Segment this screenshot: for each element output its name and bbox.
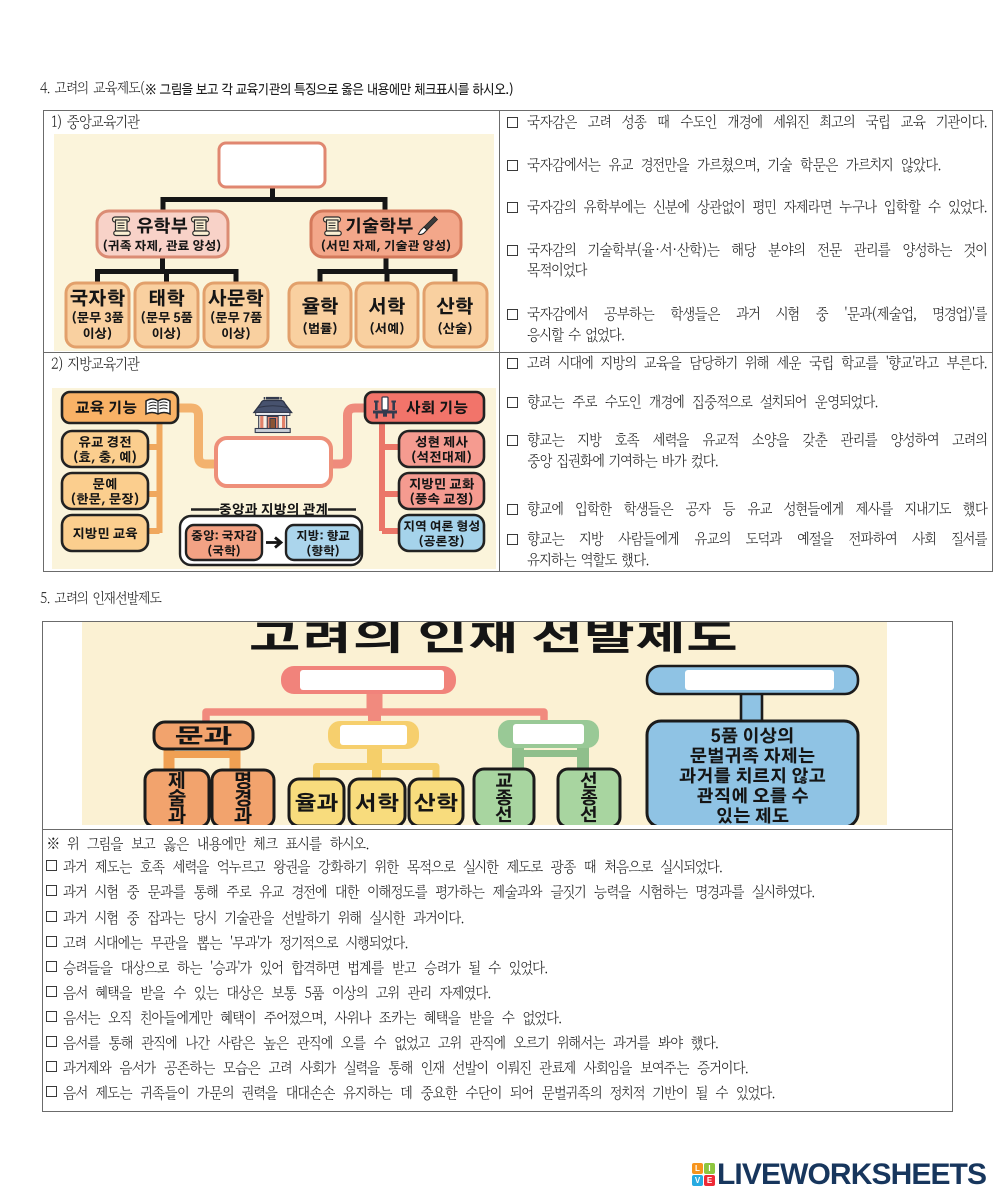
svg-text:이상): 이상) bbox=[82, 326, 112, 341]
svg-text:선: 선 bbox=[580, 772, 598, 791]
svg-text:유교 경전: 유교 경전 bbox=[79, 436, 132, 450]
svg-text:관직에 오를 수: 관직에 오를 수 bbox=[696, 787, 808, 806]
svg-text:기술학부: 기술학부 bbox=[345, 217, 414, 236]
svg-text:중앙: 국자감: 중앙: 국자감 bbox=[191, 529, 257, 543]
svg-text:선: 선 bbox=[580, 806, 598, 825]
svg-text:지역 여론 형성: 지역 여론 형성 bbox=[403, 520, 480, 534]
svg-text:종: 종 bbox=[495, 789, 513, 808]
svg-text:경: 경 bbox=[234, 789, 253, 809]
svg-text:산학: 산학 bbox=[436, 297, 473, 317]
svg-text:선: 선 bbox=[495, 806, 513, 825]
svg-text:있는 제도: 있는 제도 bbox=[716, 807, 789, 825]
svg-text:과: 과 bbox=[234, 807, 253, 826]
svg-text:(문무 5품: (문무 5품 bbox=[140, 310, 193, 325]
svg-text:종: 종 bbox=[580, 789, 598, 808]
svg-text:교육 기능: 교육 기능 bbox=[75, 400, 137, 416]
svg-text:국자학: 국자학 bbox=[70, 289, 126, 309]
svg-text:교: 교 bbox=[495, 773, 513, 791]
svg-text:성현 제사: 성현 제사 bbox=[414, 436, 468, 450]
svg-text:(문무 3품: (문무 3품 bbox=[71, 310, 124, 325]
svg-text:사회 기능: 사회 기능 bbox=[406, 400, 468, 416]
svg-text:산학: 산학 bbox=[414, 792, 458, 815]
svg-text:(서민 자제, 기술관 양성): (서민 자제, 기술관 양성) bbox=[320, 239, 451, 253]
svg-text:(공론장): (공론장) bbox=[418, 535, 465, 549]
svg-text:지방민 교육: 지방민 교육 bbox=[72, 527, 137, 541]
svg-text:과: 과 bbox=[168, 807, 187, 826]
svg-text:(풍속 교정): (풍속 교정) bbox=[409, 492, 474, 507]
svg-text:(법률): (법률) bbox=[302, 321, 338, 336]
svg-text:(문무 7품: (문무 7품 bbox=[210, 310, 263, 325]
svg-text:문예: 문예 bbox=[93, 478, 118, 492]
svg-text:지방: 향교: 지방: 향교 bbox=[296, 530, 350, 543]
svg-text:(서예): (서예) bbox=[369, 321, 405, 336]
svg-text:(국학): (국학) bbox=[207, 544, 241, 558]
svg-text:서학: 서학 bbox=[355, 792, 399, 815]
svg-text:율학: 율학 bbox=[301, 297, 338, 317]
svg-text:이상): 이상) bbox=[151, 326, 181, 341]
svg-text:태학: 태학 bbox=[148, 289, 185, 309]
svg-text:술: 술 bbox=[168, 788, 187, 809]
svg-text:5품 이상의: 5품 이상의 bbox=[711, 727, 795, 746]
svg-text:(귀족 자제, 관료 양성): (귀족 자제, 관료 양성) bbox=[102, 239, 221, 253]
svg-text:유학부: 유학부 bbox=[136, 217, 187, 236]
svg-text:서학: 서학 bbox=[368, 297, 405, 317]
svg-text:(산술): (산술) bbox=[437, 321, 473, 336]
svg-text:지방민 교화: 지방민 교화 bbox=[409, 478, 475, 492]
svg-text:과거를 치르지 않고: 과거를 치르지 않고 bbox=[679, 767, 826, 786]
svg-text:(향학): (향학) bbox=[306, 544, 340, 558]
svg-text:제: 제 bbox=[168, 772, 187, 792]
svg-text:율과: 율과 bbox=[295, 792, 339, 815]
svg-text:이상): 이상) bbox=[221, 326, 251, 341]
svg-text:문벌귀족 자제는: 문벌귀족 자제는 bbox=[690, 747, 815, 766]
svg-text:문과: 문과 bbox=[175, 726, 233, 748]
svg-text:사문학: 사문학 bbox=[208, 289, 264, 309]
svg-text:(한문, 문장): (한문, 문장) bbox=[70, 492, 139, 507]
svg-text:(효, 충, 예): (효, 충, 예) bbox=[73, 450, 138, 465]
svg-text:고려의 인재 선발제도: 고려의 인재 선발제도 bbox=[249, 622, 738, 658]
svg-text:명: 명 bbox=[234, 772, 253, 792]
svg-text:(석전대제): (석전대제) bbox=[411, 450, 473, 465]
